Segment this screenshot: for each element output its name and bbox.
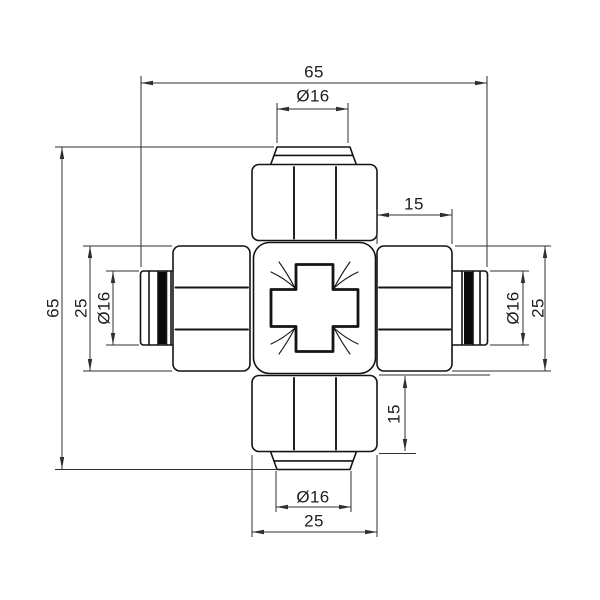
right-seal-ring bbox=[464, 272, 473, 344]
left-hex-nut bbox=[173, 246, 250, 371]
fitting-part bbox=[141, 147, 488, 470]
bottom-hex-nut bbox=[252, 376, 377, 452]
right-port-cap bbox=[450, 271, 488, 345]
dim-label-bottom-hex-width: 25 bbox=[304, 513, 324, 530]
top-port-cap bbox=[271, 147, 357, 165]
dim-label-bottom-port-diameter: Ø16 bbox=[296, 489, 329, 506]
dim-label-left-overall-height: 65 bbox=[45, 298, 62, 318]
bottom-port-cap bbox=[271, 452, 357, 470]
left-seal-ring bbox=[159, 272, 167, 344]
dim-label-bottom-hex-length: 15 bbox=[386, 404, 403, 424]
dim-label-right-hex-width: 25 bbox=[530, 298, 547, 318]
top-hex-nut bbox=[252, 165, 377, 241]
dim-label-left-port-diameter: Ø16 bbox=[96, 291, 113, 324]
dim-label-right-port-diameter: Ø16 bbox=[505, 291, 522, 324]
dim-label-right-hex-length: 15 bbox=[404, 196, 424, 213]
dim-label-top-port-diameter: Ø16 bbox=[296, 88, 329, 105]
dim-label-left-hex-width: 25 bbox=[73, 298, 90, 318]
right-hex-nut bbox=[377, 246, 452, 371]
dim-label-top-overall-width: 65 bbox=[304, 64, 324, 81]
drawing-sheet: 65 Ø16 15 65 25 Ø16 Ø16 25 15 Ø16 25 bbox=[0, 0, 600, 600]
